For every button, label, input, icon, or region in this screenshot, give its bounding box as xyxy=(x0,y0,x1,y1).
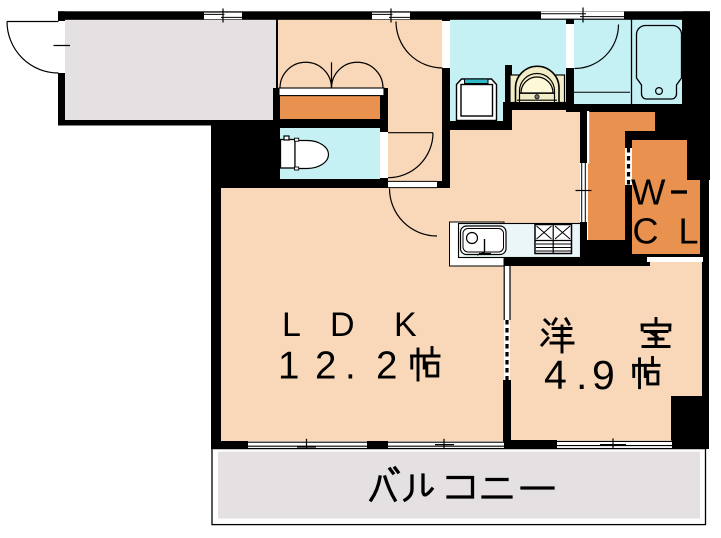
svg-text:K: K xyxy=(394,306,417,344)
svg-text:2: 2 xyxy=(376,345,397,388)
svg-text:.: . xyxy=(576,352,587,398)
svg-text:W: W xyxy=(631,172,666,213)
svg-text:2: 2 xyxy=(315,345,336,388)
svg-text:L: L xyxy=(282,306,301,344)
svg-text:1: 1 xyxy=(278,345,299,388)
svg-text:4: 4 xyxy=(544,352,567,398)
svg-text:L: L xyxy=(679,211,699,252)
svg-text:D: D xyxy=(330,306,355,344)
svg-text:C: C xyxy=(633,211,659,252)
svg-text:.: . xyxy=(345,345,356,388)
svg-text:9: 9 xyxy=(592,352,615,398)
